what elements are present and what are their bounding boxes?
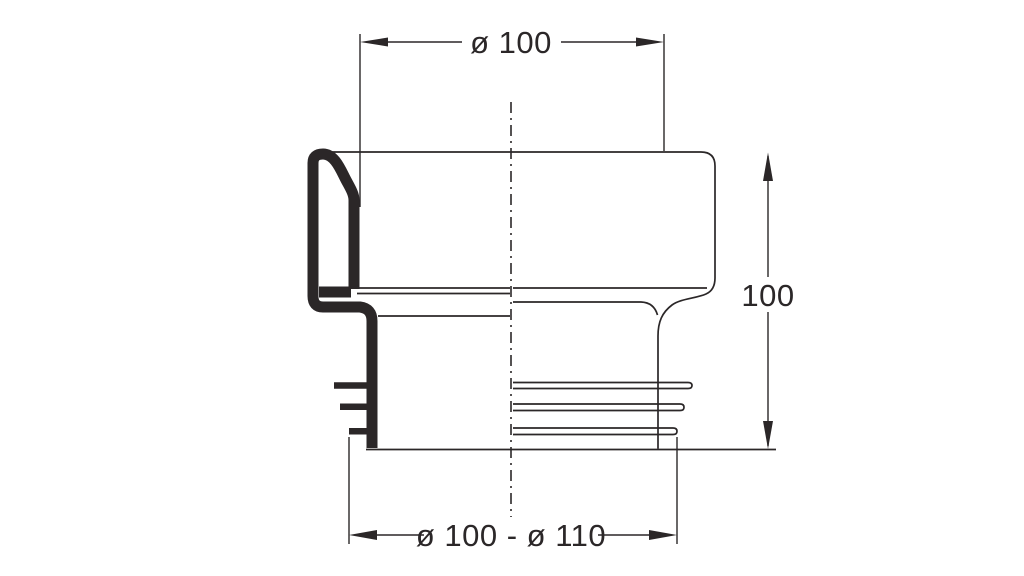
pan-connector-drawing: ø 100 100 ø 100 - ø 110 (0, 0, 1024, 576)
arrowhead-left (360, 38, 388, 47)
technical-drawing: ø 100 100 ø 100 - ø 110 (0, 0, 1024, 576)
arrowhead-up (763, 153, 773, 182)
dimension-bottom-diameter: ø 100 - ø 110 (349, 437, 677, 553)
arrowhead-down (763, 421, 773, 449)
arrowhead-right (649, 530, 677, 540)
part-outline (313, 152, 776, 450)
dimension-label-height: 100 (741, 278, 794, 313)
fin-outline-1 (513, 383, 692, 389)
arrowhead-left (349, 530, 377, 540)
dimension-label-bottom: ø 100 - ø 110 (416, 518, 606, 553)
dimension-label-top: ø 100 (470, 25, 552, 60)
dimension-top-diameter: ø 100 (360, 25, 664, 207)
shoulder-tangent-line (513, 302, 658, 315)
dimension-height: 100 (741, 153, 794, 450)
fin-outline-3 (513, 428, 677, 435)
arrowhead-right (636, 38, 664, 47)
